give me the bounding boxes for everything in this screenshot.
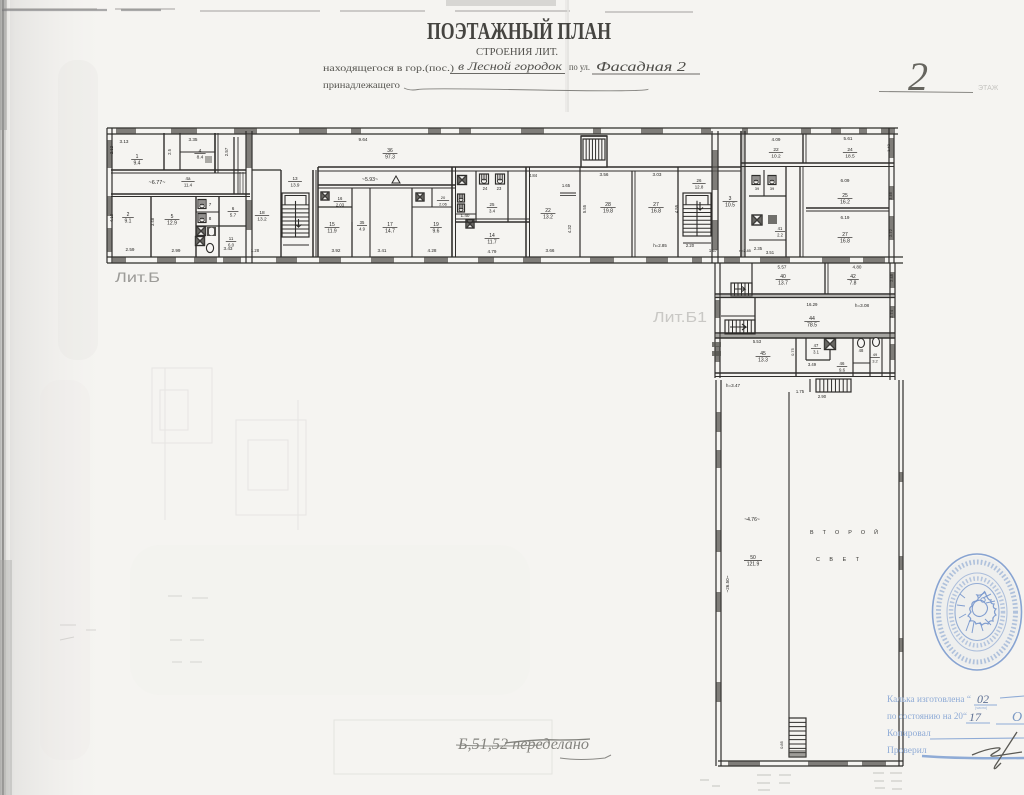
svg-text:23: 23 [497, 186, 502, 191]
svg-text:Проверил: Проверил [887, 746, 927, 756]
svg-text:(число): (число) [975, 706, 987, 710]
svg-text:4.09: 4.09 [772, 137, 781, 142]
svg-text:41: 41 [778, 226, 783, 231]
svg-text:0.75: 0.75 [790, 347, 795, 356]
svg-text:9.4: 9.4 [134, 160, 141, 166]
svg-text:9.64: 9.64 [359, 137, 368, 142]
svg-text:3.46: 3.46 [888, 191, 893, 200]
svg-text:5.7: 5.7 [230, 212, 237, 217]
svg-text:13: 13 [292, 176, 298, 181]
svg-text:14.7: 14.7 [385, 228, 395, 234]
svg-text:1.40: 1.40 [461, 213, 470, 218]
svg-text:2.72: 2.72 [888, 228, 893, 237]
svg-text:2.57: 2.57 [224, 147, 229, 156]
svg-text:7: 7 [209, 202, 212, 207]
svg-text:4.79: 4.79 [488, 249, 497, 254]
svg-text:7.8: 7.8 [850, 280, 857, 286]
svg-text:3.92: 3.92 [332, 248, 341, 253]
svg-text:8.4: 8.4 [197, 154, 204, 160]
svg-text:Лит.Б: Лит.Б [115, 269, 160, 285]
svg-text:принадлежащего: принадлежащего [323, 80, 401, 90]
svg-text:35: 35 [360, 220, 365, 225]
svg-text:3.51: 3.51 [766, 250, 775, 255]
svg-text:5.53: 5.53 [753, 339, 762, 344]
svg-text:11.9: 11.9 [327, 228, 337, 234]
svg-text:13.3: 13.3 [758, 357, 768, 363]
svg-text:2.5: 2.5 [167, 148, 172, 154]
svg-text:19.8: 19.8 [603, 208, 613, 214]
svg-text:16: 16 [338, 196, 343, 201]
svg-text:~4.76~: ~4.76~ [744, 517, 760, 523]
svg-text:2.59: 2.59 [126, 247, 135, 252]
svg-text:в Лесной городок: в Лесной городок [458, 60, 563, 73]
svg-text:6.09: 6.09 [841, 178, 850, 183]
svg-text:6: 6 [232, 206, 235, 211]
svg-text:h=3.08: h=3.08 [855, 303, 870, 308]
svg-text:4.10: 4.10 [109, 213, 114, 222]
svg-text:Б,51,52 переделано: Б,51,52 переделано [457, 736, 589, 753]
svg-text:h=3.47: h=3.47 [726, 383, 741, 388]
svg-text:11.4: 11.4 [184, 182, 193, 187]
svg-text:11.7: 11.7 [487, 239, 497, 245]
svg-text:3.43: 3.43 [224, 246, 233, 251]
svg-text:3.56: 3.56 [600, 172, 609, 177]
svg-text:39: 39 [770, 186, 775, 191]
svg-text:СТРОЕНИЯ ЛИТ.: СТРОЕНИЯ ЛИТ. [476, 47, 558, 58]
svg-text:13.2: 13.2 [257, 216, 267, 222]
svg-text:3.4: 3.4 [489, 208, 496, 213]
svg-text:02: 02 [977, 692, 989, 706]
svg-text:49: 49 [873, 352, 878, 357]
svg-text:11: 11 [229, 236, 234, 241]
svg-text:25: 25 [490, 202, 495, 207]
svg-text:2.35: 2.35 [754, 246, 763, 251]
svg-text:13.7: 13.7 [778, 280, 788, 286]
svg-text:12.8: 12.8 [695, 184, 704, 189]
svg-text:10.5: 10.5 [725, 202, 735, 208]
svg-text:4а: 4а [186, 176, 191, 181]
svg-text:по ул.: по ул. [569, 62, 590, 72]
svg-text:3.66: 3.66 [546, 248, 555, 253]
svg-text:2.48: 2.48 [889, 273, 894, 282]
svg-text:3.2: 3.2 [872, 358, 878, 363]
svg-text:2.99: 2.99 [172, 248, 181, 253]
svg-text:Лит.Б1: Лит.Б1 [653, 310, 707, 326]
svg-text:9.1: 9.1 [125, 218, 132, 224]
svg-text:~6.77~: ~6.77~ [149, 180, 166, 186]
svg-text:Калька изготовлена “: Калька изготовлена “ [887, 695, 971, 705]
svg-text:2.2: 2.2 [777, 232, 783, 237]
svg-text:9.6: 9.6 [433, 228, 440, 234]
svg-text:3.03: 3.03 [653, 172, 662, 177]
svg-text:Фасадная 2: Фасадная 2 [596, 59, 686, 74]
svg-text:12.9: 12.9 [167, 220, 177, 226]
svg-text:~5.93~: ~5.93~ [362, 177, 378, 183]
svg-text:1.65: 1.65 [562, 183, 571, 188]
svg-text:4.84: 4.84 [529, 173, 538, 178]
svg-text:24: 24 [483, 186, 488, 191]
svg-text:3.49: 3.49 [808, 362, 817, 367]
svg-text:Копировал: Копировал [887, 729, 931, 739]
svg-text:13.2: 13.2 [543, 214, 553, 220]
svg-text:9.6: 9.6 [839, 367, 846, 372]
svg-text:6.19: 6.19 [841, 215, 850, 220]
svg-text:1.43: 1.43 [886, 143, 891, 152]
svg-text:16.8: 16.8 [840, 238, 850, 244]
svg-text:ЭТАЖ: ЭТАЖ [978, 85, 999, 92]
svg-text:8: 8 [209, 216, 212, 221]
svg-text:3.35: 3.35 [189, 137, 198, 142]
svg-text:4.32: 4.32 [567, 224, 572, 233]
svg-text:5.57: 5.57 [778, 265, 787, 270]
svg-text:2.20: 2.20 [686, 243, 695, 248]
svg-text:10.2: 10.2 [771, 153, 781, 159]
svg-text:3.48: 3.48 [150, 217, 155, 226]
svg-text:2.90: 2.90 [818, 394, 827, 399]
svg-text:2.12: 2.12 [109, 145, 114, 154]
svg-text:97.3: 97.3 [385, 154, 395, 160]
svg-text:46: 46 [840, 361, 845, 366]
svg-text:3.1: 3.1 [813, 349, 819, 354]
svg-text:16.29: 16.29 [807, 302, 819, 307]
svg-text:13.9: 13.9 [291, 182, 300, 187]
svg-text:4.28: 4.28 [428, 248, 437, 253]
svg-text:по состоянию на 20“: по состоянию на 20“ [887, 712, 967, 722]
svg-text:ПОЭТАЖНЫЙ ПЛАН: ПОЭТАЖНЫЙ ПЛАН [427, 19, 611, 45]
svg-text:3.13: 3.13 [120, 139, 129, 144]
svg-text:18.5: 18.5 [845, 153, 855, 159]
svg-text:39: 39 [755, 186, 760, 191]
svg-text:5.61: 5.61 [844, 136, 853, 141]
svg-text:16.2: 16.2 [840, 199, 850, 205]
svg-text:1.28: 1.28 [251, 248, 260, 253]
svg-text:17: 17 [969, 710, 982, 724]
svg-text:4.80: 4.80 [853, 265, 862, 270]
svg-text:0.85: 0.85 [779, 740, 784, 749]
svg-text:1.75: 1.75 [796, 389, 805, 394]
svg-text:2.03: 2.03 [336, 202, 345, 207]
svg-text:121.9: 121.9 [747, 561, 760, 567]
svg-text:5.55: 5.55 [582, 204, 587, 213]
svg-text:2.06: 2.06 [439, 201, 448, 206]
svg-text:находящегося в гор.(пос.): находящегося в гор.(пос.) [323, 63, 454, 73]
svg-text:78.5: 78.5 [807, 322, 817, 328]
svg-text:26: 26 [697, 178, 702, 183]
svg-text:20: 20 [441, 195, 446, 200]
svg-text:47: 47 [814, 343, 819, 348]
svg-text:48: 48 [859, 348, 864, 353]
svg-text:О: О [1012, 710, 1022, 725]
svg-text:~26.50~: ~26.50~ [725, 575, 730, 592]
svg-text:3.41: 3.41 [378, 248, 387, 253]
svg-text:2.74: 2.74 [889, 309, 894, 318]
svg-text:н=2.85: н=2.85 [739, 249, 751, 253]
svg-text:16.8: 16.8 [651, 208, 661, 214]
svg-text:h=2.85: h=2.85 [653, 243, 667, 248]
svg-text:4.9: 4.9 [359, 226, 365, 231]
